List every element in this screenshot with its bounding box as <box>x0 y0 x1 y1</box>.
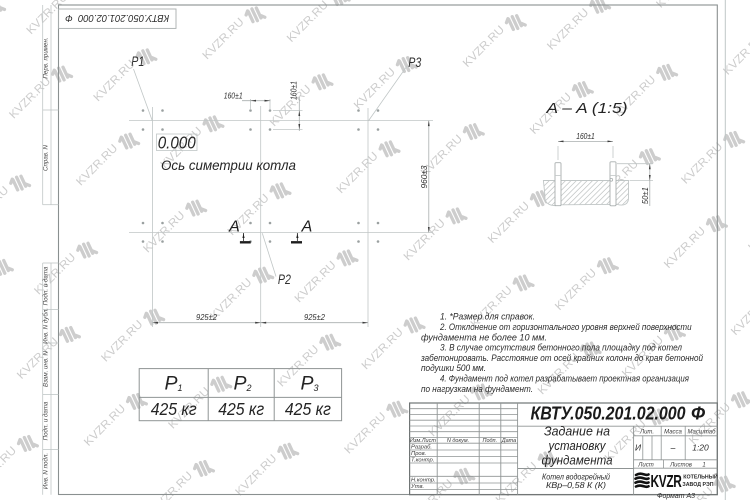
svg-text:КВТУ.050.201.02.000 Ф: КВТУ.050.201.02.000 Ф <box>65 12 169 24</box>
svg-text:425 кг: 425 кг <box>285 399 331 419</box>
svg-text:160±1: 160±1 <box>224 91 243 101</box>
svg-text:P2: P2 <box>278 271 291 287</box>
svg-text:Разраб.: Разраб. <box>411 445 432 451</box>
svg-text:N докум.: N докум. <box>447 438 469 444</box>
svg-text:P3: P3 <box>408 54 421 70</box>
svg-text:–: – <box>670 443 676 453</box>
svg-text:Масса: Масса <box>664 429 682 435</box>
svg-text:3. В случае отсутствия бетонно: 3. В случае отсутствия бетонного пола пл… <box>440 343 682 353</box>
svg-text:Взам. инв. N: Взам. инв. N <box>43 350 50 387</box>
svg-text:A – A (1:5): A – A (1:5) <box>545 101 627 117</box>
svg-text:Ось симетрии котла: Ось симетрии котла <box>161 157 296 173</box>
svg-text:425 кг: 425 кг <box>151 399 197 419</box>
svg-text:50±1: 50±1 <box>640 187 650 204</box>
svg-text:925±2: 925±2 <box>196 312 217 322</box>
svg-text:Формат А3: Формат А3 <box>657 491 696 500</box>
svg-text:по нагрузкам на фундамент.: по нагрузкам на фундамент. <box>421 384 533 394</box>
svg-text:3: 3 <box>313 383 318 393</box>
svg-text:подушки 500 мм.: подушки 500 мм. <box>421 363 486 373</box>
svg-text:КВр–0,58 К (К): КВр–0,58 К (К) <box>546 481 606 490</box>
svg-text:Ф: Ф <box>691 404 705 424</box>
svg-text:1: 1 <box>177 383 182 393</box>
svg-text:KVZR: KVZR <box>651 471 683 491</box>
svg-text:Масштаб: Масштаб <box>687 429 716 435</box>
svg-text:Т.контр.: Т.контр. <box>411 458 434 464</box>
svg-text:P: P <box>164 373 177 395</box>
svg-text:2. Отклонение от горизонтально: 2. Отклонение от горизонтального уровня … <box>439 322 691 332</box>
svg-text:КВТУ.050.201.02.000: КВТУ.050.201.02.000 <box>531 404 686 424</box>
svg-text:Подп.: Подп. <box>482 438 497 444</box>
svg-text:Н.контр.: Н.контр. <box>411 477 436 483</box>
svg-text:И: И <box>635 443 642 453</box>
svg-text:A: A <box>301 219 313 236</box>
svg-text:0.000: 0.000 <box>158 132 196 152</box>
svg-text:Утв.: Утв. <box>410 484 424 490</box>
svg-text:Задание на: Задание на <box>544 424 610 439</box>
svg-text:ЗАВОД РЭП: ЗАВОД РЭП <box>682 482 713 488</box>
svg-text:P1: P1 <box>131 53 144 69</box>
svg-text:960±3: 960±3 <box>419 165 429 188</box>
svg-text:1. *Размер для справок.: 1. *Размер для справок. <box>440 312 535 322</box>
svg-text:425 кг: 425 кг <box>218 399 264 419</box>
svg-text:160±1: 160±1 <box>289 81 299 100</box>
svg-text:забетонировать. Расстояние от: забетонировать. Расстояние от осей крайн… <box>420 353 703 363</box>
svg-text:2: 2 <box>245 383 251 393</box>
svg-text:A: A <box>228 219 240 236</box>
svg-text:Лит.: Лит. <box>639 429 654 435</box>
svg-text:1: 1 <box>702 462 705 468</box>
svg-text:P: P <box>233 373 246 395</box>
svg-text:Инв. N дубл.: Инв. N дубл. <box>43 308 50 344</box>
svg-text:Листов: Листов <box>669 462 692 468</box>
svg-text:Инв. N подл.: Инв. N подл. <box>43 453 50 489</box>
svg-text:установку: установку <box>548 438 607 453</box>
svg-text:925±2: 925±2 <box>304 312 325 322</box>
svg-text:1:20: 1:20 <box>692 443 709 453</box>
svg-text:P: P <box>300 373 313 395</box>
svg-text:фундамента: фундамента <box>542 453 613 468</box>
svg-text:Пров.: Пров. <box>411 451 426 457</box>
svg-text:Подп. и дата: Подп. и дата <box>43 401 50 440</box>
svg-text:фундамента не более 10 мм.: фундамента не более 10 мм. <box>421 332 547 342</box>
svg-text:Изм.Лист: Изм.Лист <box>410 438 436 444</box>
svg-text:Перв. примен.: Перв. примен. <box>43 37 50 78</box>
svg-text:Дата: Дата <box>501 438 517 444</box>
svg-text:4. Фундамент под котел разраба: 4. Фундамент под котел разрабатывает про… <box>440 374 689 384</box>
svg-text:Справ. N: Справ. N <box>43 145 50 171</box>
svg-text:Лист: Лист <box>637 462 653 468</box>
svg-text:160±1: 160±1 <box>576 131 595 141</box>
svg-text:Подп. и дата: Подп. и дата <box>43 266 50 305</box>
svg-text:КОТЕЛЬНЫЙ: КОТЕЛЬНЫЙ <box>683 473 718 481</box>
